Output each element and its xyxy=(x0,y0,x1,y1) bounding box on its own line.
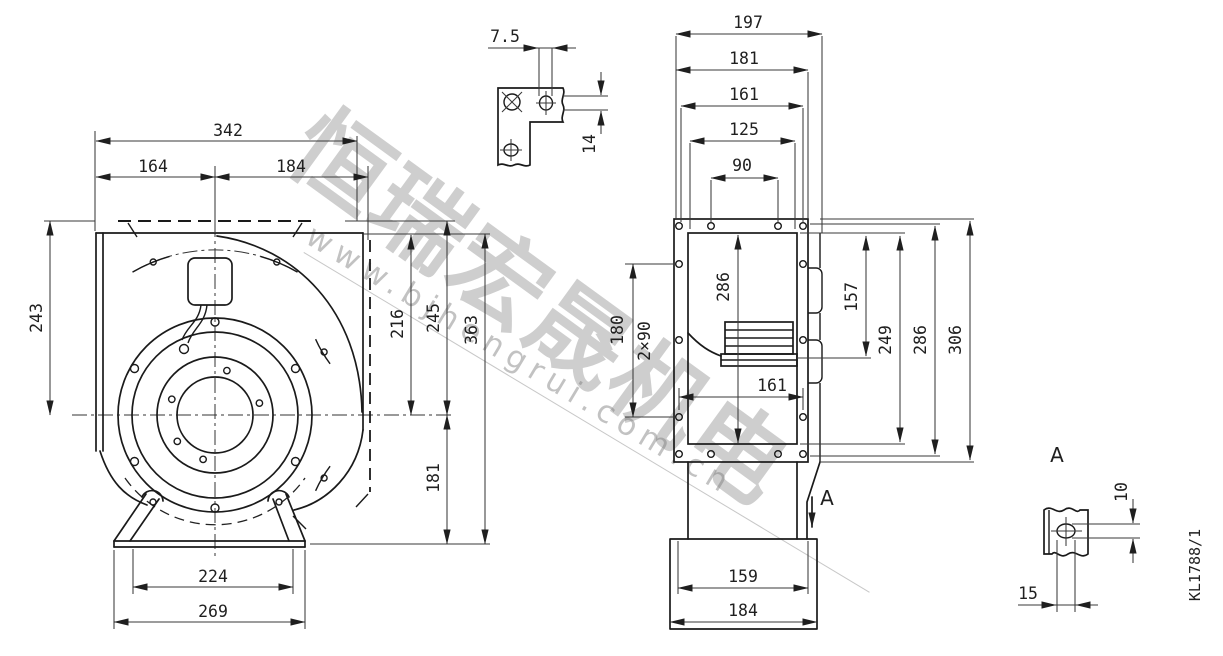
corner-mark xyxy=(293,223,302,237)
fan-dimension-drawing: 342 164 184 243 216 245 363 181 224 269 xyxy=(0,0,1223,656)
dim-243: 243 xyxy=(27,303,46,333)
detail-view-a: A 10 15 xyxy=(1018,443,1140,612)
side-view-inner-dimensions: 286 161 xyxy=(679,235,803,443)
dim-181-front: 181 xyxy=(424,463,443,493)
dim-245: 245 xyxy=(424,303,443,333)
scroll-tab xyxy=(808,340,822,383)
dim-7-5: 7.5 xyxy=(490,27,520,46)
dim-14: 14 xyxy=(580,134,599,154)
bracket-detail: 7.5 14 xyxy=(488,27,608,166)
dim-180: 180 xyxy=(608,315,627,345)
housing-bottom-right-curve xyxy=(294,430,363,510)
dim-181-side: 181 xyxy=(729,49,759,68)
dim-164: 164 xyxy=(138,157,168,176)
dim-286-inner: 286 xyxy=(714,272,733,302)
technical-drawing-page: 恒瑞宏晟机电 www.bjhengrui.com.cn xyxy=(0,0,1223,656)
dim-306: 306 xyxy=(946,325,965,355)
corner-mark xyxy=(356,494,368,507)
corner-mark xyxy=(128,223,137,237)
dim-184: 184 xyxy=(276,157,306,176)
dim-10: 10 xyxy=(1112,482,1131,502)
scroll-tab xyxy=(808,268,822,313)
dim-286-right: 286 xyxy=(911,325,930,355)
motor xyxy=(721,322,797,366)
cable-grommet xyxy=(180,345,189,354)
outlet-duct xyxy=(688,462,797,539)
side-flange-outer xyxy=(674,219,808,462)
dim-216: 216 xyxy=(388,309,407,339)
drawing-number: KL1788/1 xyxy=(1186,529,1204,601)
dim-2x90: 2×90 xyxy=(635,321,654,361)
dim-161-top: 161 xyxy=(729,85,759,104)
dim-249: 249 xyxy=(876,325,895,355)
dim-159: 159 xyxy=(728,567,758,586)
volute-curve-side xyxy=(688,333,721,356)
section-label: A xyxy=(820,486,834,510)
dim-15: 15 xyxy=(1018,584,1038,603)
dim-224: 224 xyxy=(198,567,228,586)
dim-363: 363 xyxy=(462,315,481,345)
bracket-plate xyxy=(498,88,564,166)
side-view: A 197 181 161 125 xyxy=(608,13,974,629)
scroll-cut-edge xyxy=(807,462,820,539)
dim-90: 90 xyxy=(732,156,752,175)
junction-box xyxy=(188,258,232,305)
cable xyxy=(188,305,207,343)
front-view: 342 164 184 243 216 245 363 181 224 269 xyxy=(27,121,490,629)
side-view-right-dimensions: 157 249 286 306 xyxy=(797,219,974,462)
dim-184-side: 184 xyxy=(728,601,758,620)
side-view-left-dimensions: 180 2×90 xyxy=(608,264,674,417)
dim-157: 157 xyxy=(842,282,861,312)
side-view-bottom-dimensions: 159 184 xyxy=(670,541,817,622)
dim-197: 197 xyxy=(733,13,763,32)
detail-a-label: A xyxy=(1050,443,1064,467)
housing-bottom-left-curve xyxy=(100,451,147,505)
dim-161-inner: 161 xyxy=(757,376,787,395)
mounting-foot xyxy=(114,491,305,547)
side-view-top-dimensions: 197 181 161 125 90 xyxy=(676,13,822,233)
dim-125: 125 xyxy=(729,120,759,139)
dim-342: 342 xyxy=(213,121,243,140)
dim-269: 269 xyxy=(198,602,228,621)
